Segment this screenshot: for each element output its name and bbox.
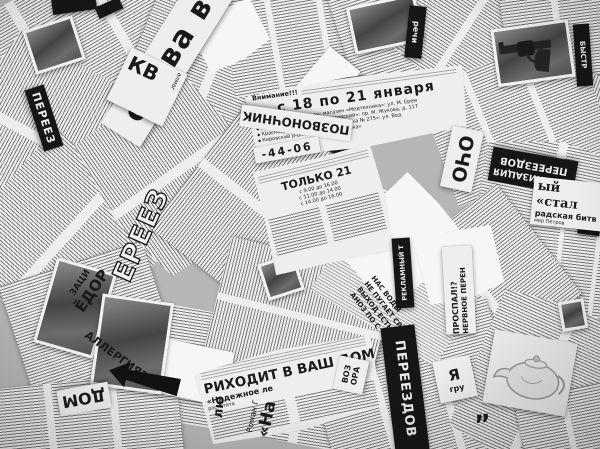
roman-fragment: лю [211, 395, 228, 418]
ocho-label: ОЧО [446, 133, 477, 184]
pereezdov-label: ПЕРЕЕЗДОВ [392, 340, 419, 439]
scrap-roman-fragment: лю [207, 391, 232, 423]
rechi-band-label: речи [410, 20, 421, 43]
newsprint-collage-photo: осква в ПЕРЕЕЗ КВ алмаг ПЕРЕ МА речи БЫС… [0, 0, 600, 449]
revolver-icon [494, 22, 573, 84]
scrap-stal-headline: ый «стал радская битв мер Петров [530, 176, 600, 231]
scrap-teapot-sketch [482, 329, 578, 416]
scrap-prospal: ПРОСПАЛ!? НЕРВНОЕ ПЕРЕН [442, 245, 477, 334]
ya-gru-small: гру [449, 382, 466, 394]
quote-glyph: „ [472, 403, 491, 419]
dom-label: ДОМ [61, 386, 107, 412]
scrap-revolver-photo [490, 19, 575, 87]
reklamny-label: РЕКЛАМНЫЙ Т [397, 245, 409, 301]
scrap-quote-mark: „ [466, 402, 500, 436]
photo-fragment [558, 298, 589, 332]
teapot-icon [482, 329, 578, 416]
bystro-band-label: БЫСТР [578, 41, 588, 69]
